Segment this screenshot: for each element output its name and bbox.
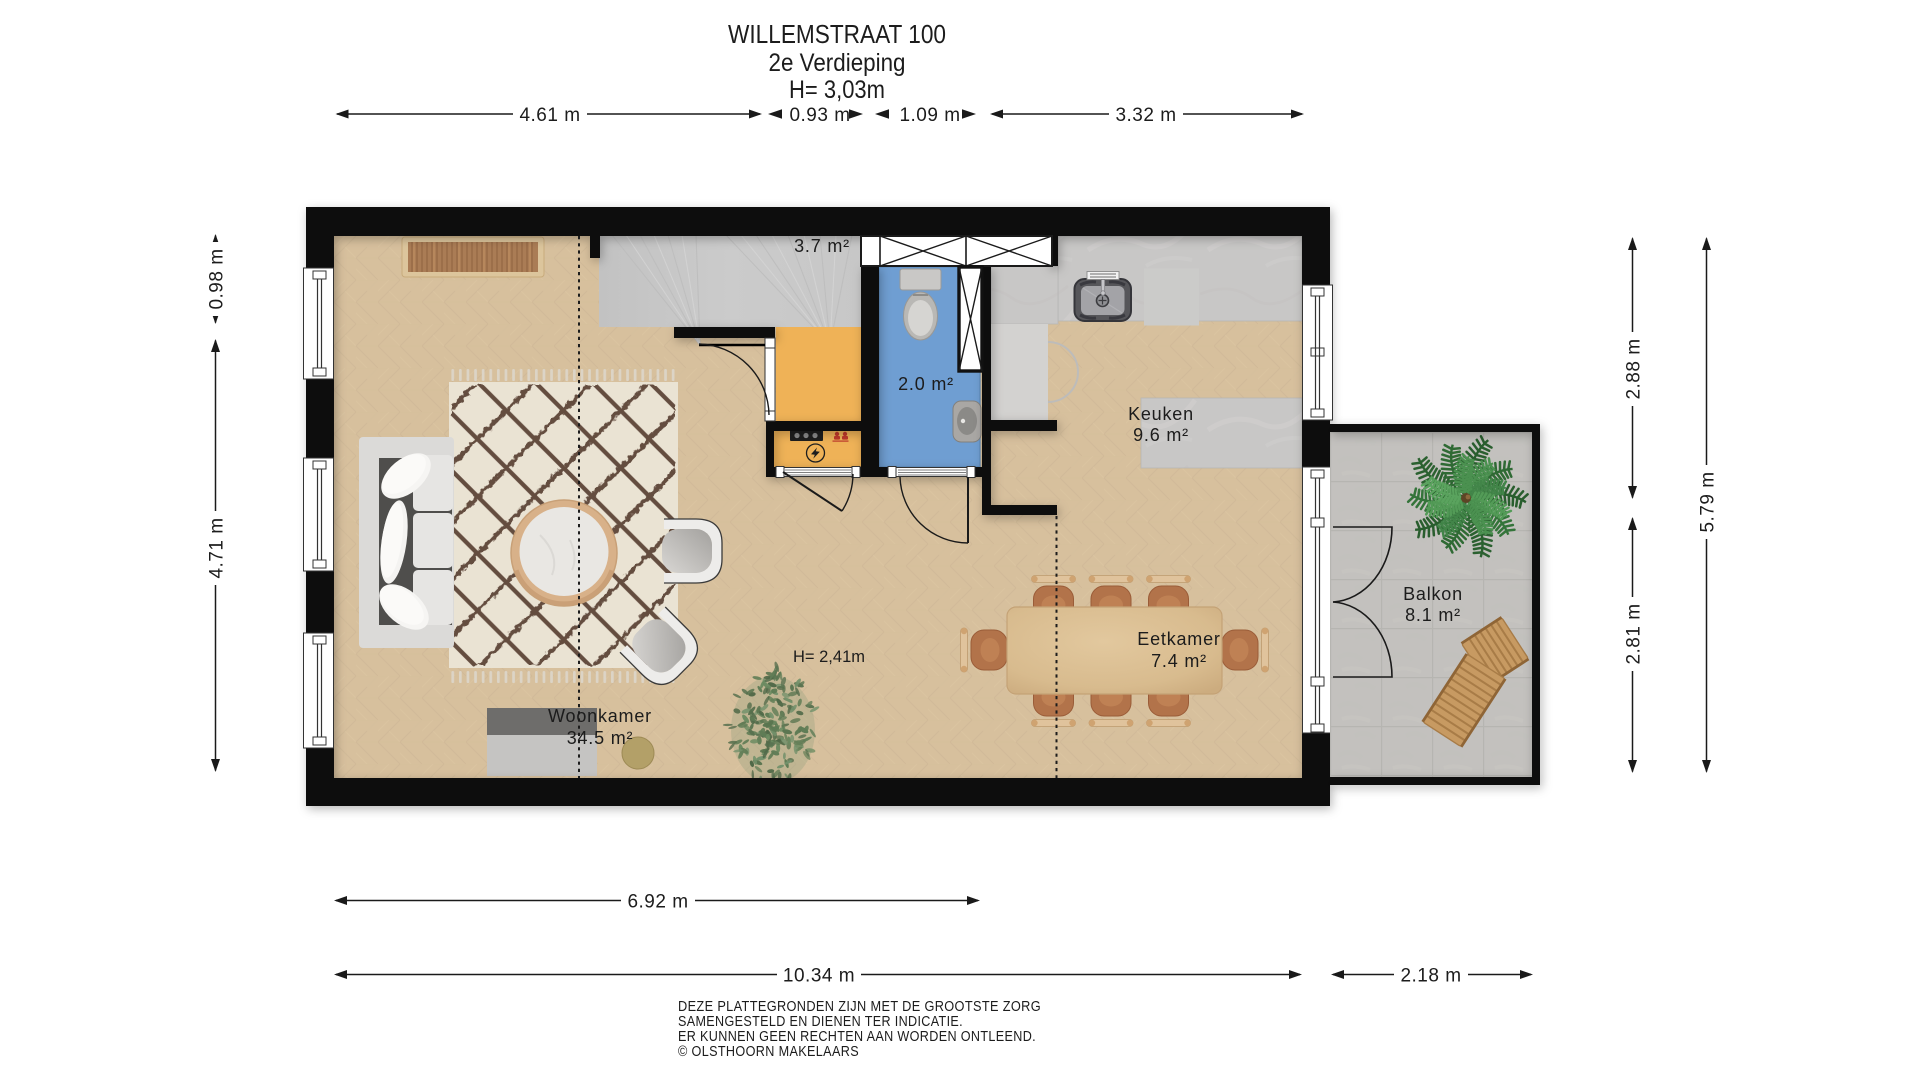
svg-text:3.7 m²: 3.7 m² bbox=[794, 236, 850, 256]
svg-text:9.6 m²: 9.6 m² bbox=[1133, 425, 1189, 445]
svg-text:3.32 m: 3.32 m bbox=[1115, 105, 1176, 126]
svg-text:5.79 m: 5.79 m bbox=[1698, 471, 1719, 532]
svg-text:34.5 m²: 34.5 m² bbox=[567, 728, 634, 748]
svg-text:4.61 m: 4.61 m bbox=[519, 105, 580, 126]
svg-text:7.4 m²: 7.4 m² bbox=[1151, 651, 1207, 671]
svg-text:ER KUNNEN GEEN RECHTEN AAN WOR: ER KUNNEN GEEN RECHTEN AAN WORDEN ONTLEE… bbox=[678, 1029, 1036, 1045]
svg-text:2.88 m: 2.88 m bbox=[1624, 338, 1645, 399]
svg-text:4.71 m: 4.71 m bbox=[207, 517, 228, 578]
svg-text:Eetkamer: Eetkamer bbox=[1137, 629, 1220, 649]
svg-text:0.98 m: 0.98 m bbox=[207, 248, 228, 309]
svg-text:2.81 m: 2.81 m bbox=[1624, 603, 1645, 664]
svg-text:6.92 m: 6.92 m bbox=[627, 892, 688, 913]
svg-text:1.09 m: 1.09 m bbox=[899, 105, 960, 126]
svg-text:H= 2,41m: H= 2,41m bbox=[793, 647, 865, 666]
svg-text:DEZE PLATTEGRONDEN ZIJN MET DE: DEZE PLATTEGRONDEN ZIJN MET DE GROOTSTE … bbox=[678, 999, 1041, 1015]
svg-text:H= 3,03m: H= 3,03m bbox=[789, 76, 885, 104]
svg-text:2.18 m: 2.18 m bbox=[1400, 966, 1461, 987]
svg-text:0.93 m: 0.93 m bbox=[789, 105, 850, 126]
svg-text:SAMENGESTELD EN DIENEN TER IND: SAMENGESTELD EN DIENEN TER INDICATIE. bbox=[678, 1014, 963, 1030]
svg-text:10.34 m: 10.34 m bbox=[783, 966, 855, 987]
svg-text:Woonkamer: Woonkamer bbox=[548, 706, 652, 726]
svg-text:Keuken: Keuken bbox=[1128, 404, 1194, 424]
svg-text:WILLEMSTRAAT 100: WILLEMSTRAAT 100 bbox=[728, 19, 946, 49]
svg-text:Balkon: Balkon bbox=[1403, 584, 1463, 604]
svg-text:8.1 m²: 8.1 m² bbox=[1405, 605, 1461, 625]
svg-text:2.0 m²: 2.0 m² bbox=[898, 374, 954, 394]
svg-text:© OLSTHOORN MAKELAARS: © OLSTHOORN MAKELAARS bbox=[678, 1044, 859, 1060]
svg-text:2e Verdieping: 2e Verdieping bbox=[769, 49, 906, 77]
